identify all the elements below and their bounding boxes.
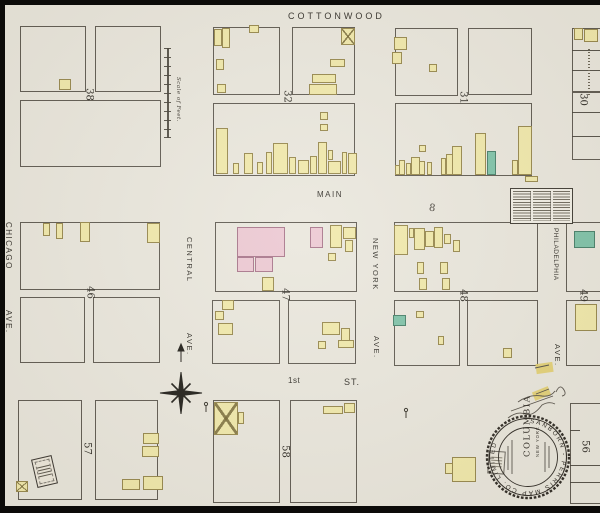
street-label-new-york-ave: AVE. [372,336,381,359]
street-labels-layer: COTTONWOOD MAIN 1st ST. CHICAGO AVE. CEN… [5,5,600,506]
street-label-new-york: NEW YORK [371,238,380,291]
street-label-cottonwood: COTTONWOOD [288,11,385,21]
street-label-chicago: CHICAGO [5,222,13,270]
key-column [553,191,570,221]
street-label-first-number: 1st [288,376,300,385]
key-column [533,191,551,221]
street-label-central: CENTRAL [185,237,194,283]
street-label-philadelphia: PHILADELPHIA [552,228,559,281]
street-label-philadelphia-ave: AVE. [553,344,562,367]
certificate-slip [487,450,506,474]
map-key-legend [510,188,573,224]
key-column [513,191,531,221]
scanned-sanborn-map-page: { "map": { "streets": { "cottonwood": "C… [0,0,600,513]
street-label-first-st: ST. [344,377,360,387]
map-sheet: 3832313046474849575856 COTTONWOOD MAIN 1… [5,5,600,506]
lumber-yard-note [588,49,590,95]
street-label-chicago-ave: AVE. [5,310,13,334]
street-label-central-ave: AVE. [185,333,194,356]
street-label-main: MAIN [317,190,343,199]
scale-bar-label: Scale of Feet. [175,77,181,122]
